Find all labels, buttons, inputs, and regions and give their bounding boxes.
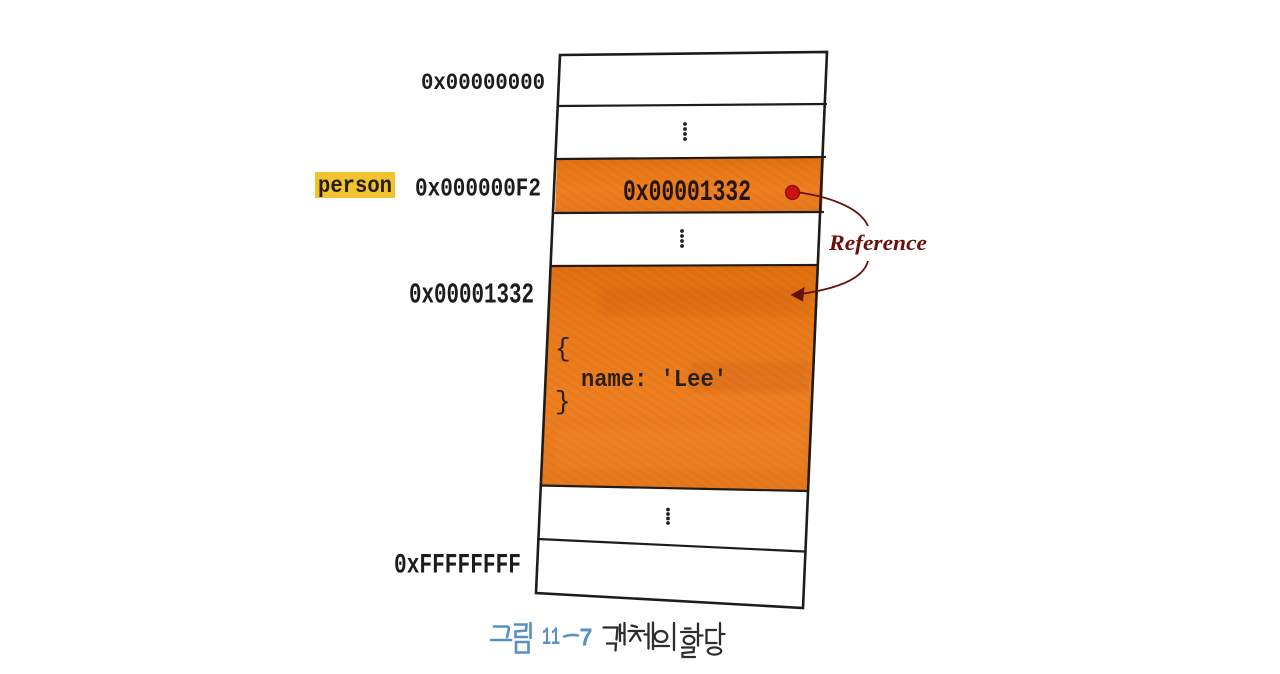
svg-text:name: 'Lee': name: 'Lee': [581, 367, 727, 394]
svg-text:}: }: [555, 387, 571, 417]
svg-text:0x00001332: 0x00001332: [623, 176, 751, 210]
svg-text:7: 7: [579, 624, 593, 654]
svg-text:11: 11: [542, 623, 560, 652]
svg-text:0x000000F2: 0x000000F2: [415, 174, 541, 204]
svg-text:Reference: Reference: [828, 230, 927, 255]
svg-text:{: {: [555, 334, 571, 364]
svg-text:0x00000000: 0x00000000: [421, 70, 545, 96]
svg-text:person: person: [318, 173, 392, 199]
svg-text:0x00001332: 0x00001332: [409, 279, 534, 312]
svg-text:0xFFFFFFFF: 0xFFFFFFFF: [394, 551, 521, 582]
